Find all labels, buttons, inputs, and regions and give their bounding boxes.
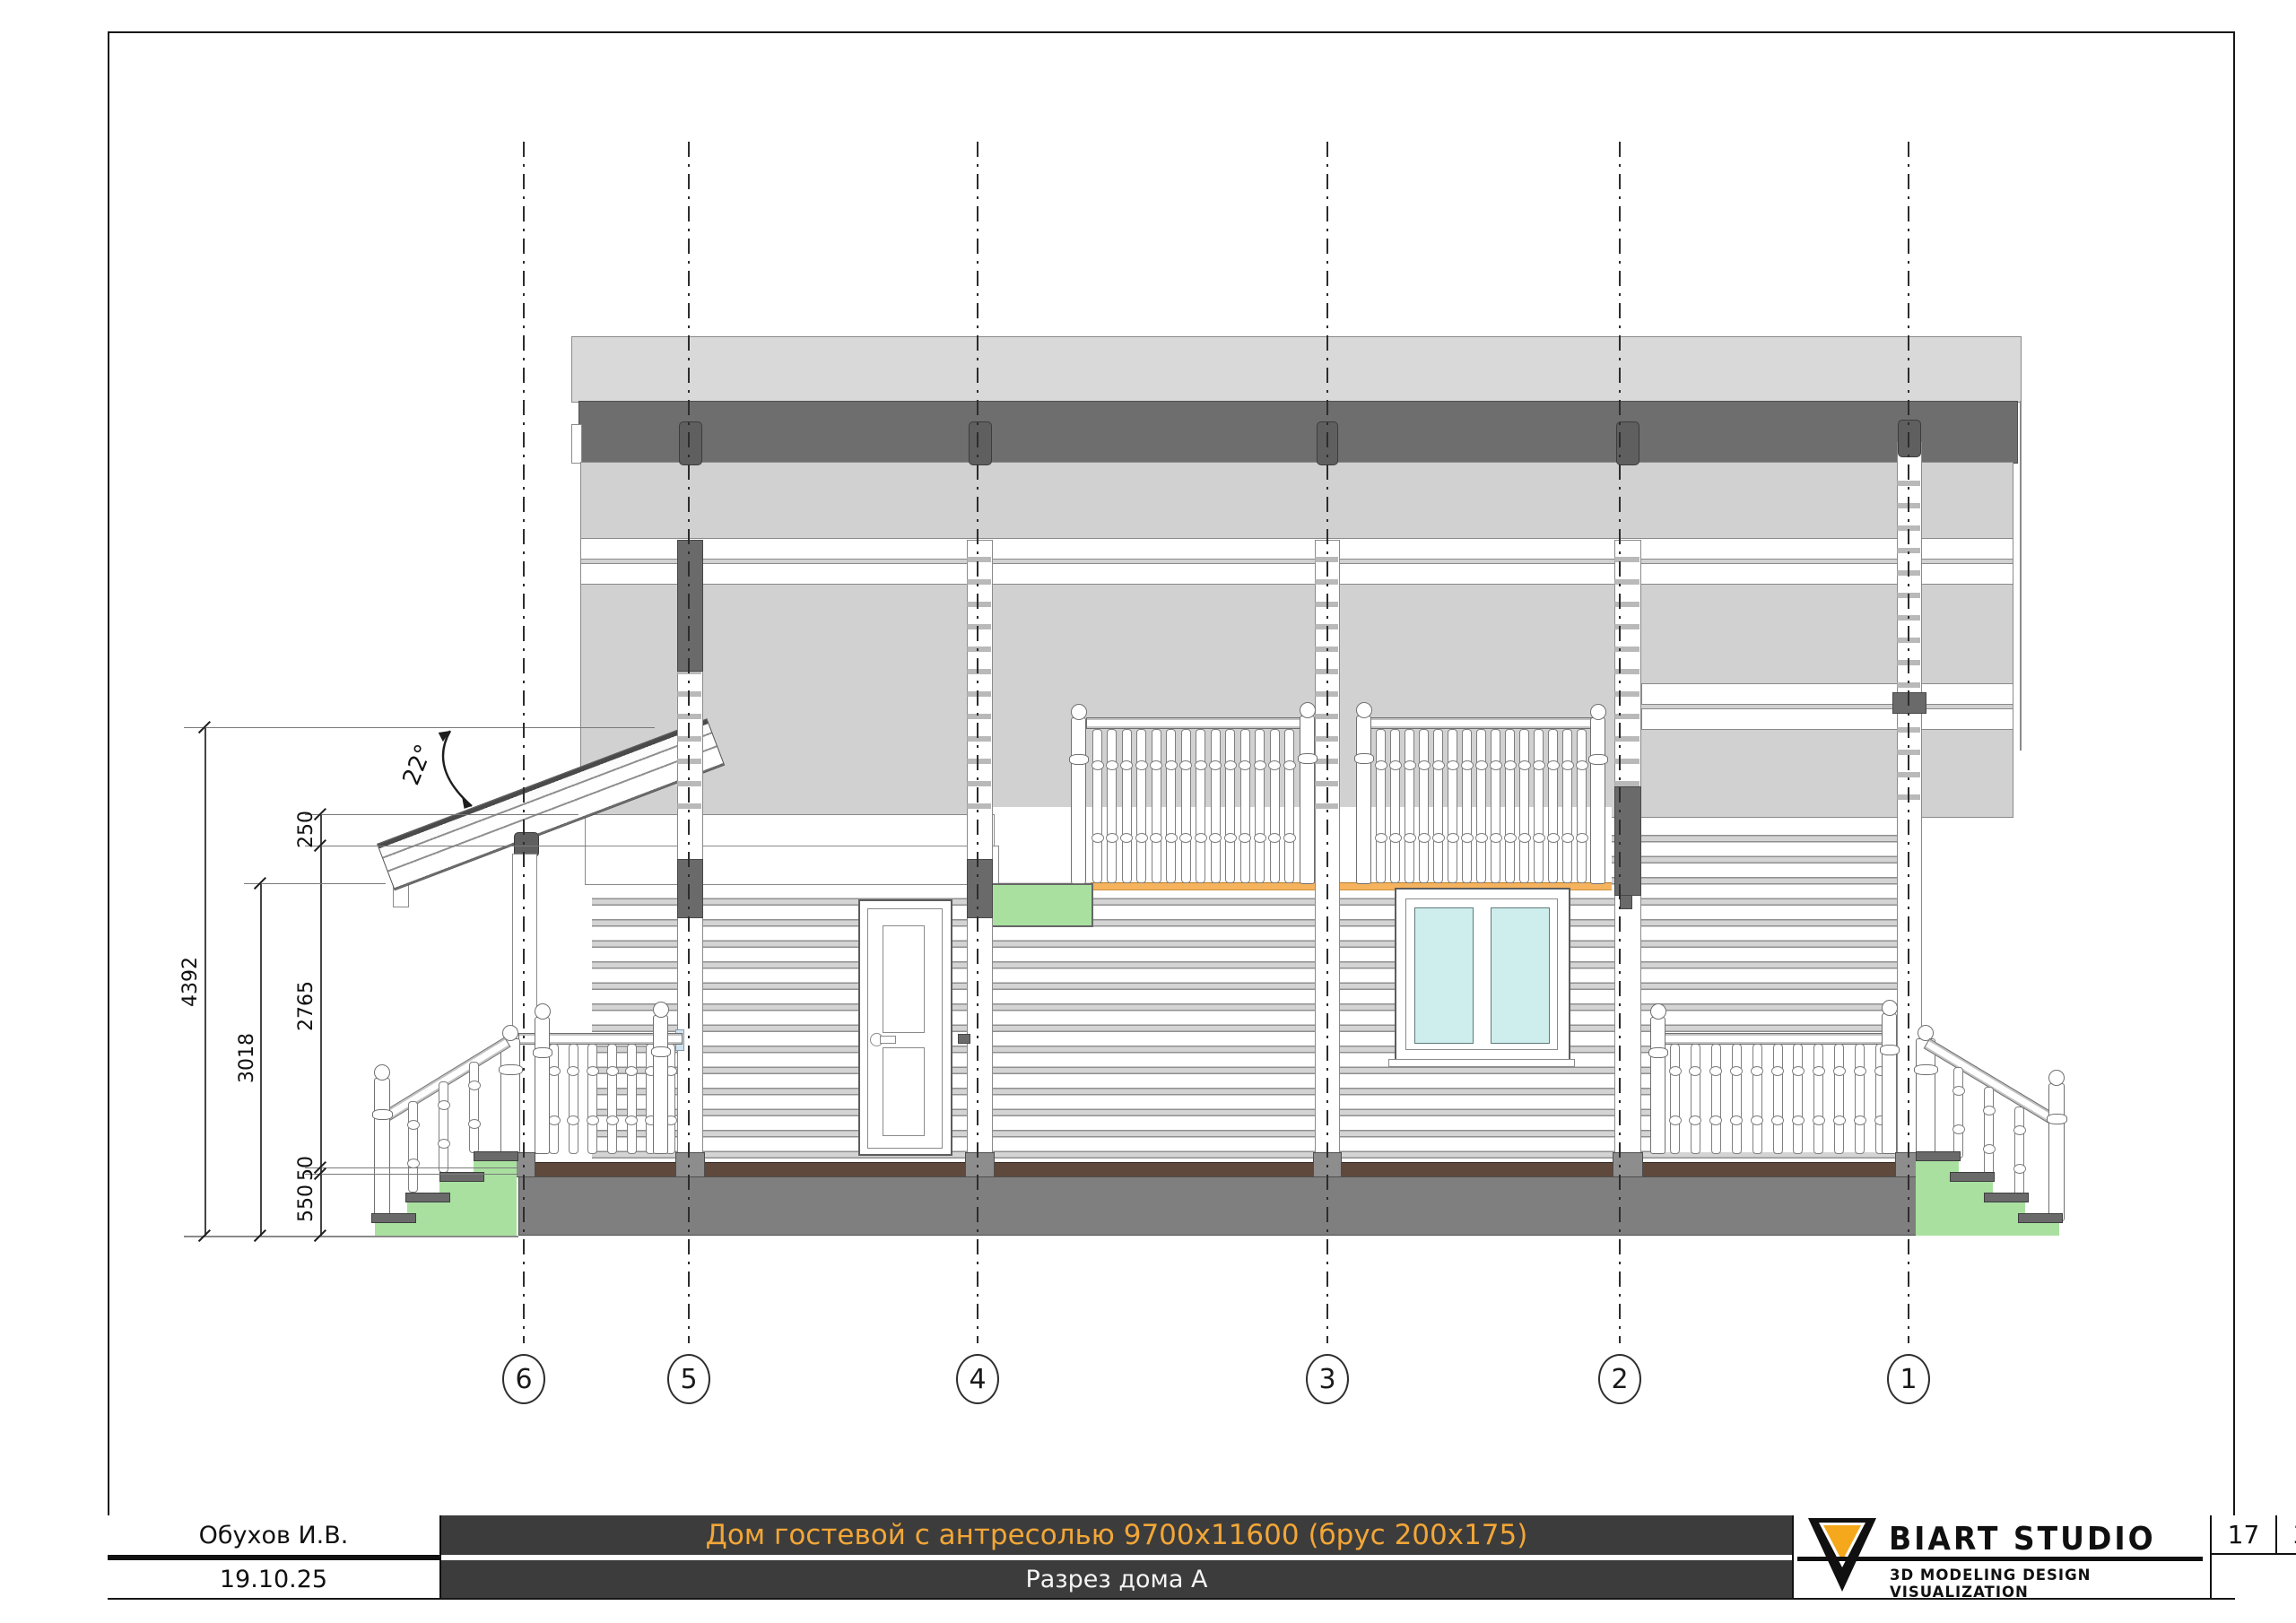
balcony-baluster xyxy=(1448,729,1457,883)
gable-beam xyxy=(580,538,2013,560)
stair-tread xyxy=(1916,1151,1961,1161)
stair-baluster xyxy=(469,1062,479,1153)
extension-line xyxy=(305,1167,518,1168)
roof-fascia xyxy=(578,401,2018,464)
sheet-date: 19.10.25 xyxy=(220,1566,327,1593)
project-title-band: Дом гостевой с антресолью 9700х11600 (бр… xyxy=(441,1515,1792,1555)
balcony-baluster xyxy=(1225,729,1235,883)
dimension-value: 3018 xyxy=(236,1018,261,1098)
porch-baluster xyxy=(627,1044,637,1154)
rafter-cap xyxy=(969,421,992,465)
beam-end-axis1 xyxy=(1892,692,1926,714)
column-cut-section xyxy=(677,859,703,918)
balcony-baluster xyxy=(1136,729,1146,883)
window-sill xyxy=(1388,1059,1575,1067)
rafter-cap xyxy=(1898,420,1921,457)
logo-divider xyxy=(1797,1557,2203,1561)
porch-newel xyxy=(535,1017,550,1154)
column-base xyxy=(675,1152,705,1177)
porch-baluster xyxy=(1855,1044,1865,1154)
axis-bubble: 2 xyxy=(1598,1354,1641,1404)
door-panel-lower xyxy=(883,1047,925,1136)
axis-line xyxy=(1326,142,1328,1343)
axis-line xyxy=(977,142,978,1343)
axis-line xyxy=(1908,142,1909,1343)
porch-baluster xyxy=(1834,1044,1844,1154)
roof-slab xyxy=(571,336,2022,403)
balcony-baluster xyxy=(1462,729,1472,883)
balcony-baluster xyxy=(1166,729,1176,883)
stair-tread xyxy=(474,1151,518,1161)
stair-tread xyxy=(405,1193,450,1202)
axis-bubble: 1 xyxy=(1887,1354,1930,1404)
stair-tread xyxy=(1950,1172,1995,1182)
dimension-value: 550 xyxy=(295,1163,320,1244)
axis-bubble: 4 xyxy=(956,1354,999,1404)
porch-newel xyxy=(1650,1017,1665,1154)
door-handle-bar xyxy=(880,1036,896,1044)
balcony-rail xyxy=(1370,717,1593,729)
column-cut-section xyxy=(967,859,993,918)
drawing-sheet: 22° 43923018276525050550654321 Обухов И.… xyxy=(0,0,2296,1623)
column-base xyxy=(965,1152,995,1177)
balcony-baluster xyxy=(1092,729,1102,883)
balcony-baluster xyxy=(1196,729,1205,883)
column-base xyxy=(1613,1152,1643,1177)
page-number-cell: 17 xyxy=(2210,1515,2275,1555)
porch-baluster xyxy=(1793,1044,1803,1154)
porch-baluster xyxy=(1773,1044,1783,1154)
stair-bottom-newel xyxy=(2048,1083,2065,1221)
page-number: 17 xyxy=(2228,1520,2260,1549)
gable-beam xyxy=(580,563,2013,585)
balcony-baluster xyxy=(1562,729,1572,883)
floor-deck-band xyxy=(518,1162,1917,1177)
stair-top-newel xyxy=(1916,1038,1935,1154)
porch-baluster xyxy=(1711,1044,1721,1154)
logo-tagline: 3D MODELING DESIGN VISUALIZATION xyxy=(1890,1567,2212,1601)
axis-line xyxy=(523,142,525,1343)
balcony-baluster xyxy=(1255,729,1265,883)
porch-baluster xyxy=(1670,1044,1680,1154)
porch-baluster xyxy=(1752,1044,1762,1154)
extension-line xyxy=(305,1174,518,1175)
porch-baluster xyxy=(1813,1044,1823,1154)
balcony-newel xyxy=(1300,716,1315,884)
balcony-baluster xyxy=(1390,729,1400,883)
window-glass-left xyxy=(1414,907,1474,1044)
logo-name: BIART STUDIO xyxy=(1889,1519,2156,1557)
balcony-newel xyxy=(1071,717,1086,884)
balcony-baluster xyxy=(1577,729,1587,883)
cut-floor-beam-green xyxy=(991,883,1093,927)
axis-bubble: 5 xyxy=(667,1354,710,1404)
window-glass-right xyxy=(1491,907,1550,1044)
stair-bottom-newel xyxy=(374,1078,390,1219)
stair-tread xyxy=(2018,1213,2063,1223)
sheet-title-band: Разрез дома А xyxy=(441,1560,1792,1598)
empty-cell xyxy=(2210,1555,2296,1598)
foundation-plinth xyxy=(518,1176,1917,1236)
stair-baluster xyxy=(1953,1067,1963,1159)
door-panel-upper xyxy=(883,925,925,1033)
porch-baluster xyxy=(607,1044,617,1154)
axis-line xyxy=(1619,142,1621,1343)
dimension-line xyxy=(204,727,206,1236)
mezzanine-floor-band xyxy=(585,814,995,847)
porch-baluster xyxy=(587,1044,597,1154)
balcony-baluster xyxy=(1491,729,1500,883)
extension-line xyxy=(244,883,386,884)
pages-total-cell: 30 xyxy=(2275,1515,2296,1555)
mezzanine-floor-band xyxy=(585,846,999,885)
sheet-title: Разрез дома А xyxy=(1025,1566,1207,1593)
logo-triangle-inner-icon xyxy=(1823,1525,1861,1561)
gable-beam xyxy=(1641,683,2013,705)
balcony-baluster xyxy=(1534,729,1544,883)
porch-baluster xyxy=(569,1044,578,1154)
stair-tread xyxy=(1984,1193,2029,1202)
column-cut-section xyxy=(677,540,703,672)
balcony-baluster xyxy=(1519,729,1529,883)
balcony-baluster xyxy=(1122,729,1132,883)
extension-line xyxy=(184,727,655,728)
balcony-baluster xyxy=(1376,729,1386,883)
balcony-baluster xyxy=(1270,729,1280,883)
balcony-baluster xyxy=(1419,729,1429,883)
author-name: Обухов И.В. xyxy=(199,1522,349,1549)
dimension-value: 250 xyxy=(295,789,320,870)
title-block: Обухов И.В. 19.10.25 Дом гостевой с антр… xyxy=(108,1515,2233,1598)
axis-bubble: 6 xyxy=(502,1354,545,1404)
logo-cell: BIART STUDIO 3D MODELING DESIGN VISUALIZ… xyxy=(1792,1515,2212,1598)
stair-baluster xyxy=(408,1101,418,1193)
balcony-baluster xyxy=(1476,729,1486,883)
author-cell: Обухов И.В. xyxy=(108,1515,441,1560)
stair-baluster xyxy=(2014,1107,2024,1198)
stair-baluster xyxy=(439,1081,448,1173)
date-cell: 19.10.25 xyxy=(108,1560,441,1598)
latch-detail xyxy=(958,1034,970,1044)
dimension-value: 4392 xyxy=(179,942,204,1022)
stair-baluster xyxy=(1984,1087,1994,1178)
column-notches xyxy=(967,540,991,811)
extension-line xyxy=(305,814,578,815)
balcony-baluster xyxy=(1433,729,1443,883)
stair-tread xyxy=(371,1213,416,1223)
balcony-floor-orange xyxy=(1091,882,1315,890)
house-section-drawing: 22° 43923018276525050550654321 xyxy=(0,0,2296,1515)
extension-line xyxy=(305,846,587,846)
axis-line xyxy=(688,142,690,1343)
balcony-baluster xyxy=(1152,729,1161,883)
rafter-cap xyxy=(679,421,702,465)
balcony-baluster xyxy=(1548,729,1558,883)
mezzanine-gable-wall xyxy=(580,462,2013,818)
dimension-value: 2765 xyxy=(295,966,320,1046)
balcony-newel xyxy=(1356,716,1371,884)
gable-right-edge-line xyxy=(2020,401,2022,751)
axis-bubble: 3 xyxy=(1306,1354,1349,1404)
balcony-rail xyxy=(1086,717,1300,729)
balcony-baluster xyxy=(1240,729,1250,883)
ground-line xyxy=(184,1236,518,1237)
balcony-newel xyxy=(1590,717,1605,884)
balcony-baluster xyxy=(1181,729,1191,883)
porch-baluster xyxy=(1691,1044,1700,1154)
latch-detail xyxy=(1620,895,1632,909)
porch-newel xyxy=(653,1015,668,1154)
porch-baluster xyxy=(1732,1044,1742,1154)
balcony-baluster xyxy=(1211,729,1221,883)
balcony-baluster xyxy=(1405,729,1414,883)
porch-baluster xyxy=(549,1044,559,1154)
balcony-baluster xyxy=(1284,729,1294,883)
fascia-end-notch xyxy=(571,424,582,464)
balcony-baluster xyxy=(1107,729,1117,883)
gable-beam xyxy=(1641,708,2013,730)
balcony-baluster xyxy=(1505,729,1515,883)
stair-top-newel xyxy=(500,1038,520,1154)
porch-newel xyxy=(1882,1013,1897,1154)
project-title: Дом гостевой с антресолью 9700х11600 (бр… xyxy=(706,1519,1528,1551)
